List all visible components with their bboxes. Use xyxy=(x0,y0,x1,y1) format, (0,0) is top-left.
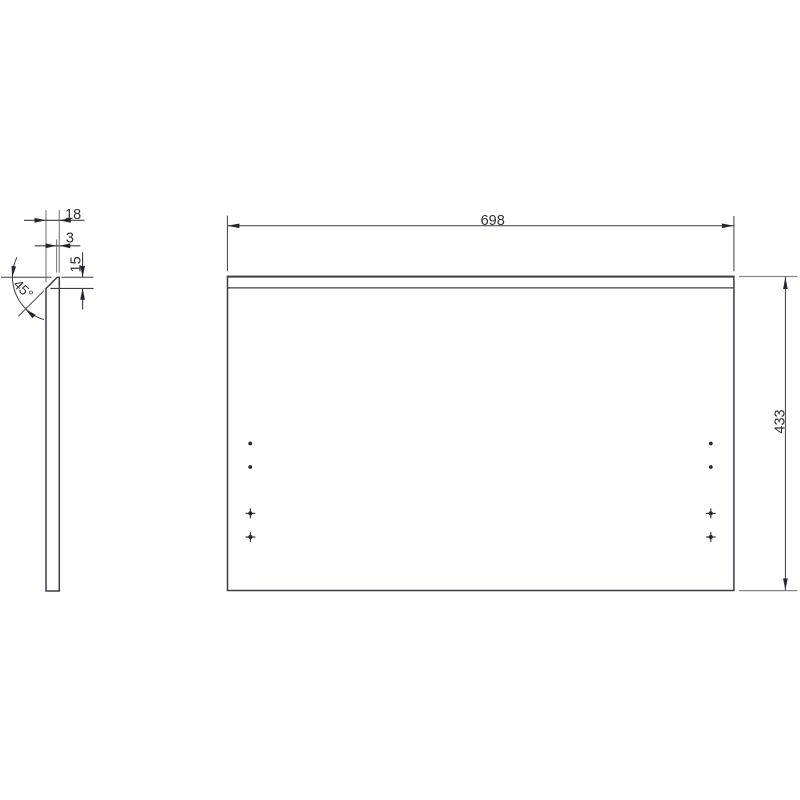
svg-text:15: 15 xyxy=(69,256,85,272)
svg-text:18: 18 xyxy=(65,207,81,223)
svg-text:433: 433 xyxy=(772,409,788,433)
svg-text:3: 3 xyxy=(66,230,74,246)
svg-text:698: 698 xyxy=(481,213,505,229)
